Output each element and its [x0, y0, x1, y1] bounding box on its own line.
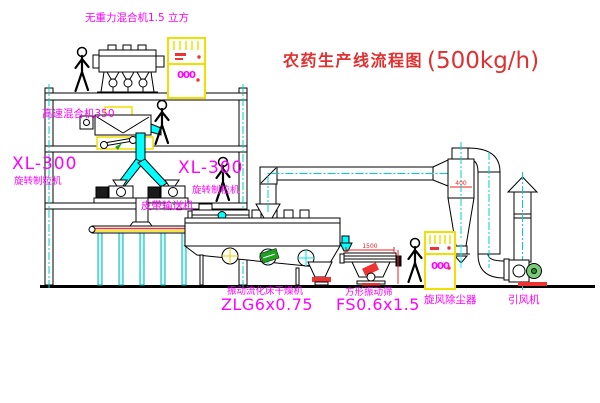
- label-dryer-model: ZLG6x0.75: [221, 297, 313, 313]
- title-text: 农药生产线流程图: [283, 47, 423, 74]
- label-granulator-left-model: XL-300: [12, 156, 77, 173]
- label-screen-model: FS0.6x1.5: [336, 297, 420, 313]
- screen-dimension: 1500: [362, 243, 377, 250]
- induced-draft-fan: [504, 259, 547, 286]
- title-capacity: (500kg/h): [427, 48, 539, 74]
- gravity-mixer: [93, 45, 164, 92]
- cyclone-separator: 400: [448, 148, 504, 278]
- label-fan: 引风机: [508, 295, 540, 306]
- label-belt-conveyor: 皮带输送机: [141, 201, 194, 212]
- process-flow-diagram: 400: [0, 0, 600, 403]
- label-high-speed-mixer: 高速混合机350: [42, 109, 115, 120]
- cabinet-lower-display: 000: [428, 261, 452, 272]
- person-figure: [76, 48, 89, 92]
- person-figure: [409, 239, 422, 283]
- label-granulator-mid-name: 旋转制粒机: [192, 186, 240, 196]
- label-granulator-left-name: 旋转制粒机: [14, 177, 62, 187]
- control-cabinet-upper: [168, 38, 205, 98]
- person-figure: [156, 101, 169, 145]
- cabinet-upper-display: 000: [173, 70, 199, 81]
- dryer-exhaust-pipe: [256, 160, 448, 218]
- diagram-title: 农药生产线流程图 (500kg/h): [283, 47, 539, 74]
- label-granulator-mid-model: XL-300: [178, 160, 243, 177]
- label-gravity-mixer: 无重力混合机1.5 立方: [85, 13, 189, 24]
- fluid-bed-dryer: [185, 210, 340, 285]
- vibrating-screen: 1500: [340, 236, 401, 286]
- label-cyclone: 旋风除尘器: [424, 295, 477, 306]
